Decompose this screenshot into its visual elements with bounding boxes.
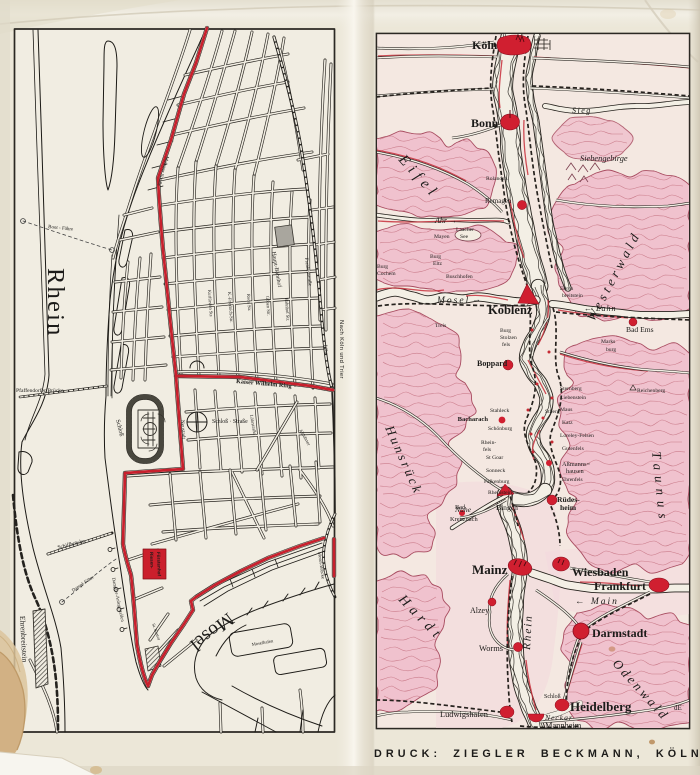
svg-text:Loreley-Felsen: Loreley-Felsen [560, 433, 594, 439]
svg-text:Liebenstein: Liebenstein [560, 395, 586, 401]
svg-text:Gutenfels: Gutenfels [562, 445, 584, 452]
svg-text:Boppard: Boppard [477, 359, 508, 368]
svg-text:Rolandsb.: Rolandsb. [486, 176, 509, 182]
svg-text:Bonn: Bonn [471, 116, 499, 130]
svg-text:dE: dE [674, 704, 682, 712]
svg-text:fels: fels [502, 341, 510, 348]
svg-text:Schloß: Schloß [544, 693, 561, 700]
svg-text:Siebengebirge: Siebengebirge [580, 154, 628, 163]
svg-text:Rheinstein: Rheinstein [488, 490, 512, 496]
svg-text:Laacher: Laacher [456, 227, 474, 233]
svg-text:Wiesbaden: Wiesbaden [572, 565, 629, 579]
svg-text:Schloß · Straße: Schloß · Straße [212, 418, 248, 425]
svg-text:Remagen: Remagen [485, 197, 512, 205]
svg-text:Löhr: Löhr [322, 345, 328, 355]
svg-text:Stberg: Stberg [545, 409, 560, 415]
svg-text:Mosel: Mosel [436, 296, 470, 306]
svg-text:Rhein-: Rhein- [481, 440, 496, 446]
svg-text:Kreuznach: Kreuznach [450, 516, 478, 523]
svg-text:Sonneck: Sonneck [486, 468, 505, 474]
svg-text:Ludwigshafen: Ludwigshafen [440, 710, 489, 719]
svg-text:Treis: Treis [435, 323, 446, 329]
svg-text:St Goar: St Goar [486, 455, 503, 461]
svg-text:breitstein: breitstein [562, 293, 583, 299]
svg-text:Riesen-: Riesen- [149, 552, 155, 569]
svg-text:Bad Ems: Bad Ems [626, 325, 654, 334]
svg-text:← Main: ← Main [575, 597, 619, 607]
svg-text:Heidelberg: Heidelberg [570, 699, 632, 714]
svg-text:DRUCK: ZIEGLER BECKMANN, KÖLN: DRUCK: ZIEGLER BECKMANN, KÖLN [374, 747, 700, 760]
svg-text:Stolzen: Stolzen [500, 335, 517, 341]
svg-text:Burg: Burg [377, 264, 388, 270]
svg-text:Ahr →: Ahr → [434, 216, 457, 225]
svg-text:Mainz: Mainz [472, 562, 508, 577]
svg-text:Marks: Marks [601, 339, 615, 345]
svg-text:Bingen: Bingen [496, 503, 518, 512]
svg-text:→: → [472, 294, 481, 304]
svg-text:Cochem: Cochem [377, 271, 396, 277]
svg-text:burg: burg [606, 347, 616, 353]
svg-text:Sieg: Sieg [572, 106, 592, 115]
svg-text:Köln: Köln [472, 38, 498, 52]
svg-text:Mayen: Mayen [434, 234, 450, 240]
svg-text:Maus: Maus [560, 407, 572, 413]
svg-text:Bacharach: Bacharach [458, 416, 489, 423]
svg-text:Falkenburg: Falkenburg [484, 479, 510, 485]
svg-text:Neckar: Neckar [544, 713, 573, 722]
svg-text:Worms: Worms [479, 644, 503, 653]
svg-text:Reichenberg: Reichenberg [637, 388, 665, 394]
svg-text:Fürstenhof: Fürstenhof [156, 552, 162, 577]
svg-text:See: See [460, 234, 469, 240]
svg-text:Schönburg: Schönburg [488, 426, 512, 432]
svg-text:Pfaffendorfer Brücke: Pfaffendorfer Brücke [16, 387, 64, 394]
svg-text:Nahe: Nahe [454, 505, 472, 514]
svg-text:hausen: hausen [566, 468, 585, 475]
svg-text:Eltz: Eltz [433, 261, 443, 267]
svg-text:Ehren: Ehren [560, 286, 574, 292]
svg-text:Burg: Burg [500, 328, 511, 334]
svg-text:Stahleck: Stahleck [490, 408, 509, 414]
svg-text:Rhein: Rhein [42, 268, 69, 338]
svg-text:heim: heim [560, 503, 577, 512]
svg-text:Frankfurt: Frankfurt [594, 579, 646, 593]
svg-text:Katz: Katz [562, 420, 573, 426]
svg-text:Ehrenfels: Ehrenfels [562, 476, 583, 483]
svg-text:Sternberg: Sternberg [560, 386, 582, 392]
svg-text:fels: fels [483, 446, 491, 453]
svg-text:Burg: Burg [430, 254, 441, 260]
svg-text:Nach Köln und Trier: Nach Köln und Trier [338, 320, 344, 379]
svg-text:Buschhofen: Buschhofen [446, 273, 473, 280]
svg-text:Koblenz: Koblenz [488, 303, 533, 317]
svg-text:Aßmanns=: Aßmanns= [562, 461, 590, 468]
svg-text:Darmstadt: Darmstadt [592, 626, 647, 640]
svg-text:Rhein: Rhein [521, 614, 535, 651]
svg-text:Alzey: Alzey [470, 606, 489, 615]
